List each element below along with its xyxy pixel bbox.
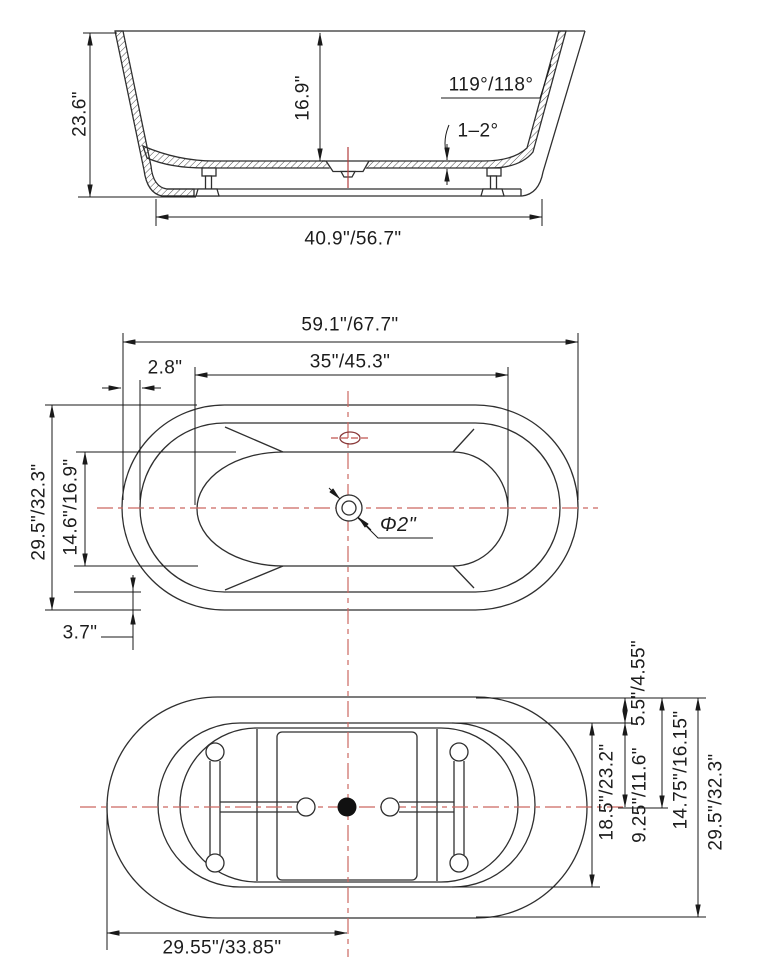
foot-circle-bl [206, 854, 224, 872]
front-view-drawing [115, 31, 585, 196]
label-interior-width: 14.6"/16.9" [62, 458, 81, 555]
left-wall-section [115, 31, 194, 196]
label-interior-length: 35"/45.3" [310, 353, 390, 372]
label-rim-width-side: 3.7" [63, 624, 98, 643]
label-overall-length: 59.1"/67.7" [301, 316, 398, 335]
bathtub-dimension-drawing [0, 0, 768, 973]
foot-circle-br [450, 854, 468, 872]
basin-chamfer-tr [453, 429, 474, 452]
right-leg-frame [399, 761, 464, 855]
label-half-length: 29.55"/33.85" [162, 939, 281, 958]
left-leg [196, 168, 219, 196]
label-bottom-overall-width: 29.5"/32.3" [707, 753, 726, 850]
label-wall-angle: 119°/118° [449, 76, 534, 95]
basin-chamfer-bl [225, 566, 283, 590]
centerlines [80, 147, 623, 957]
label-base-length: 40.9"/56.7" [304, 230, 401, 249]
adjuster-circle-right [381, 798, 399, 816]
drawing-sheet: 23.6" 16.9" 119°/118° 1–2° 40.9"/56.7" 5… [0, 0, 768, 973]
left-leg-frame [210, 761, 298, 855]
basin-chamfer-br [453, 566, 474, 588]
basin-shell-section [143, 31, 566, 168]
label-edge-to-center: 14.75"/16.15" [672, 710, 691, 829]
label-plan-overall-width: 29.5"/32.3" [30, 463, 49, 560]
label-bottom-slope: 1–2° [458, 122, 499, 141]
right-apron-line [162, 31, 585, 196]
label-interior-depth: 16.9" [294, 75, 313, 121]
label-deck-offset: 5.5"/4.55" [630, 640, 649, 726]
foot-circle-tr [450, 743, 468, 761]
overlay-details [206, 432, 468, 872]
label-base-width: 18.5"/23.2" [598, 743, 617, 840]
label-rim-width-end: 2.8" [148, 359, 183, 378]
foot-circle-tl [206, 743, 224, 761]
adjuster-circle-left [297, 798, 315, 816]
label-half-base-width: 9.25"/11.6" [631, 747, 650, 843]
right-leg [481, 168, 504, 196]
basin-chamfer-tl [225, 427, 283, 452]
bottom-drain-hole [338, 798, 357, 817]
label-overall-height: 23.6" [71, 91, 90, 137]
label-drain-diameter: Φ2" [380, 515, 416, 535]
